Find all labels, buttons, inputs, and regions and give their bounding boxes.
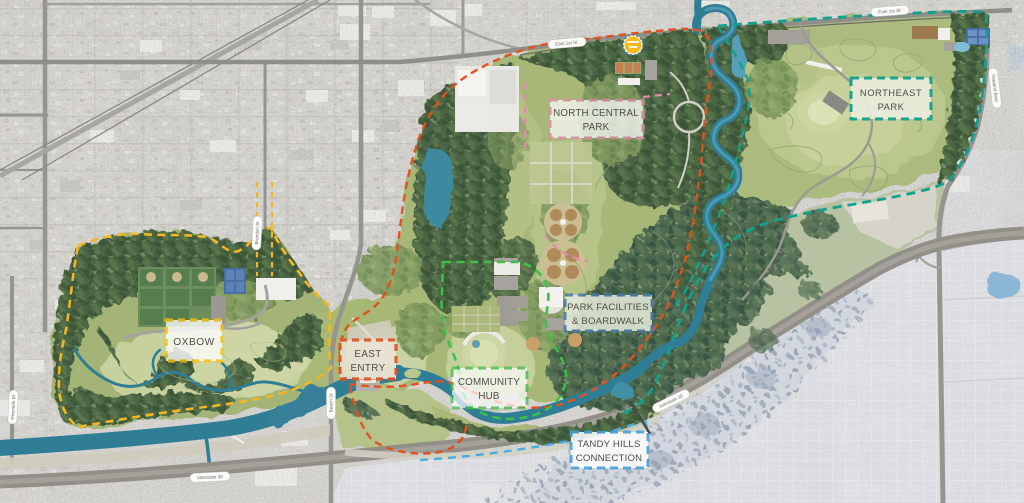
svg-text:& BOARDWALK: & BOARDWALK	[572, 316, 645, 327]
svg-text:HUB: HUB	[478, 391, 500, 402]
svg-text:PARK FACILITIES: PARK FACILITIES	[567, 302, 649, 313]
svg-text:CONNECTION: CONNECTION	[576, 453, 643, 464]
svg-text:NORTHEAST: NORTHEAST	[860, 87, 922, 98]
svg-text:TANDY HILLS: TANDY HILLS	[577, 439, 640, 450]
svg-text:COMMUNITY: COMMUNITY	[458, 377, 520, 388]
svg-text:ENTRY: ENTRY	[350, 363, 385, 374]
svg-text:PARK: PARK	[878, 101, 905, 112]
svg-text:OXBOW: OXBOW	[173, 337, 215, 348]
svg-text:PARK: PARK	[583, 122, 610, 133]
svg-text:EAST: EAST	[354, 349, 381, 360]
svg-text:Beach St: Beach St	[329, 393, 334, 412]
svg-text:NORTH CENTRAL: NORTH CENTRAL	[553, 108, 639, 119]
